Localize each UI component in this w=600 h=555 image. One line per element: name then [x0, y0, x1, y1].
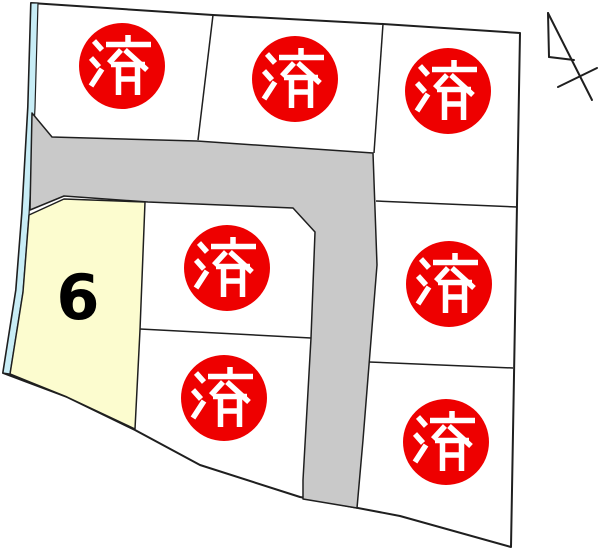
sold-stamp — [405, 48, 491, 134]
sold-stamp — [403, 399, 489, 485]
lot-map: 6 — [0, 0, 600, 555]
north-arrow-icon — [548, 13, 597, 100]
sold-stamp — [79, 23, 165, 109]
sold-stamp — [181, 355, 267, 441]
lot-6-number: 6 — [56, 261, 99, 334]
sold-stamp — [184, 225, 270, 311]
lot-map-canvas: 6 — [0, 0, 600, 555]
sold-stamp — [406, 241, 492, 327]
sold-stamp — [252, 36, 338, 122]
